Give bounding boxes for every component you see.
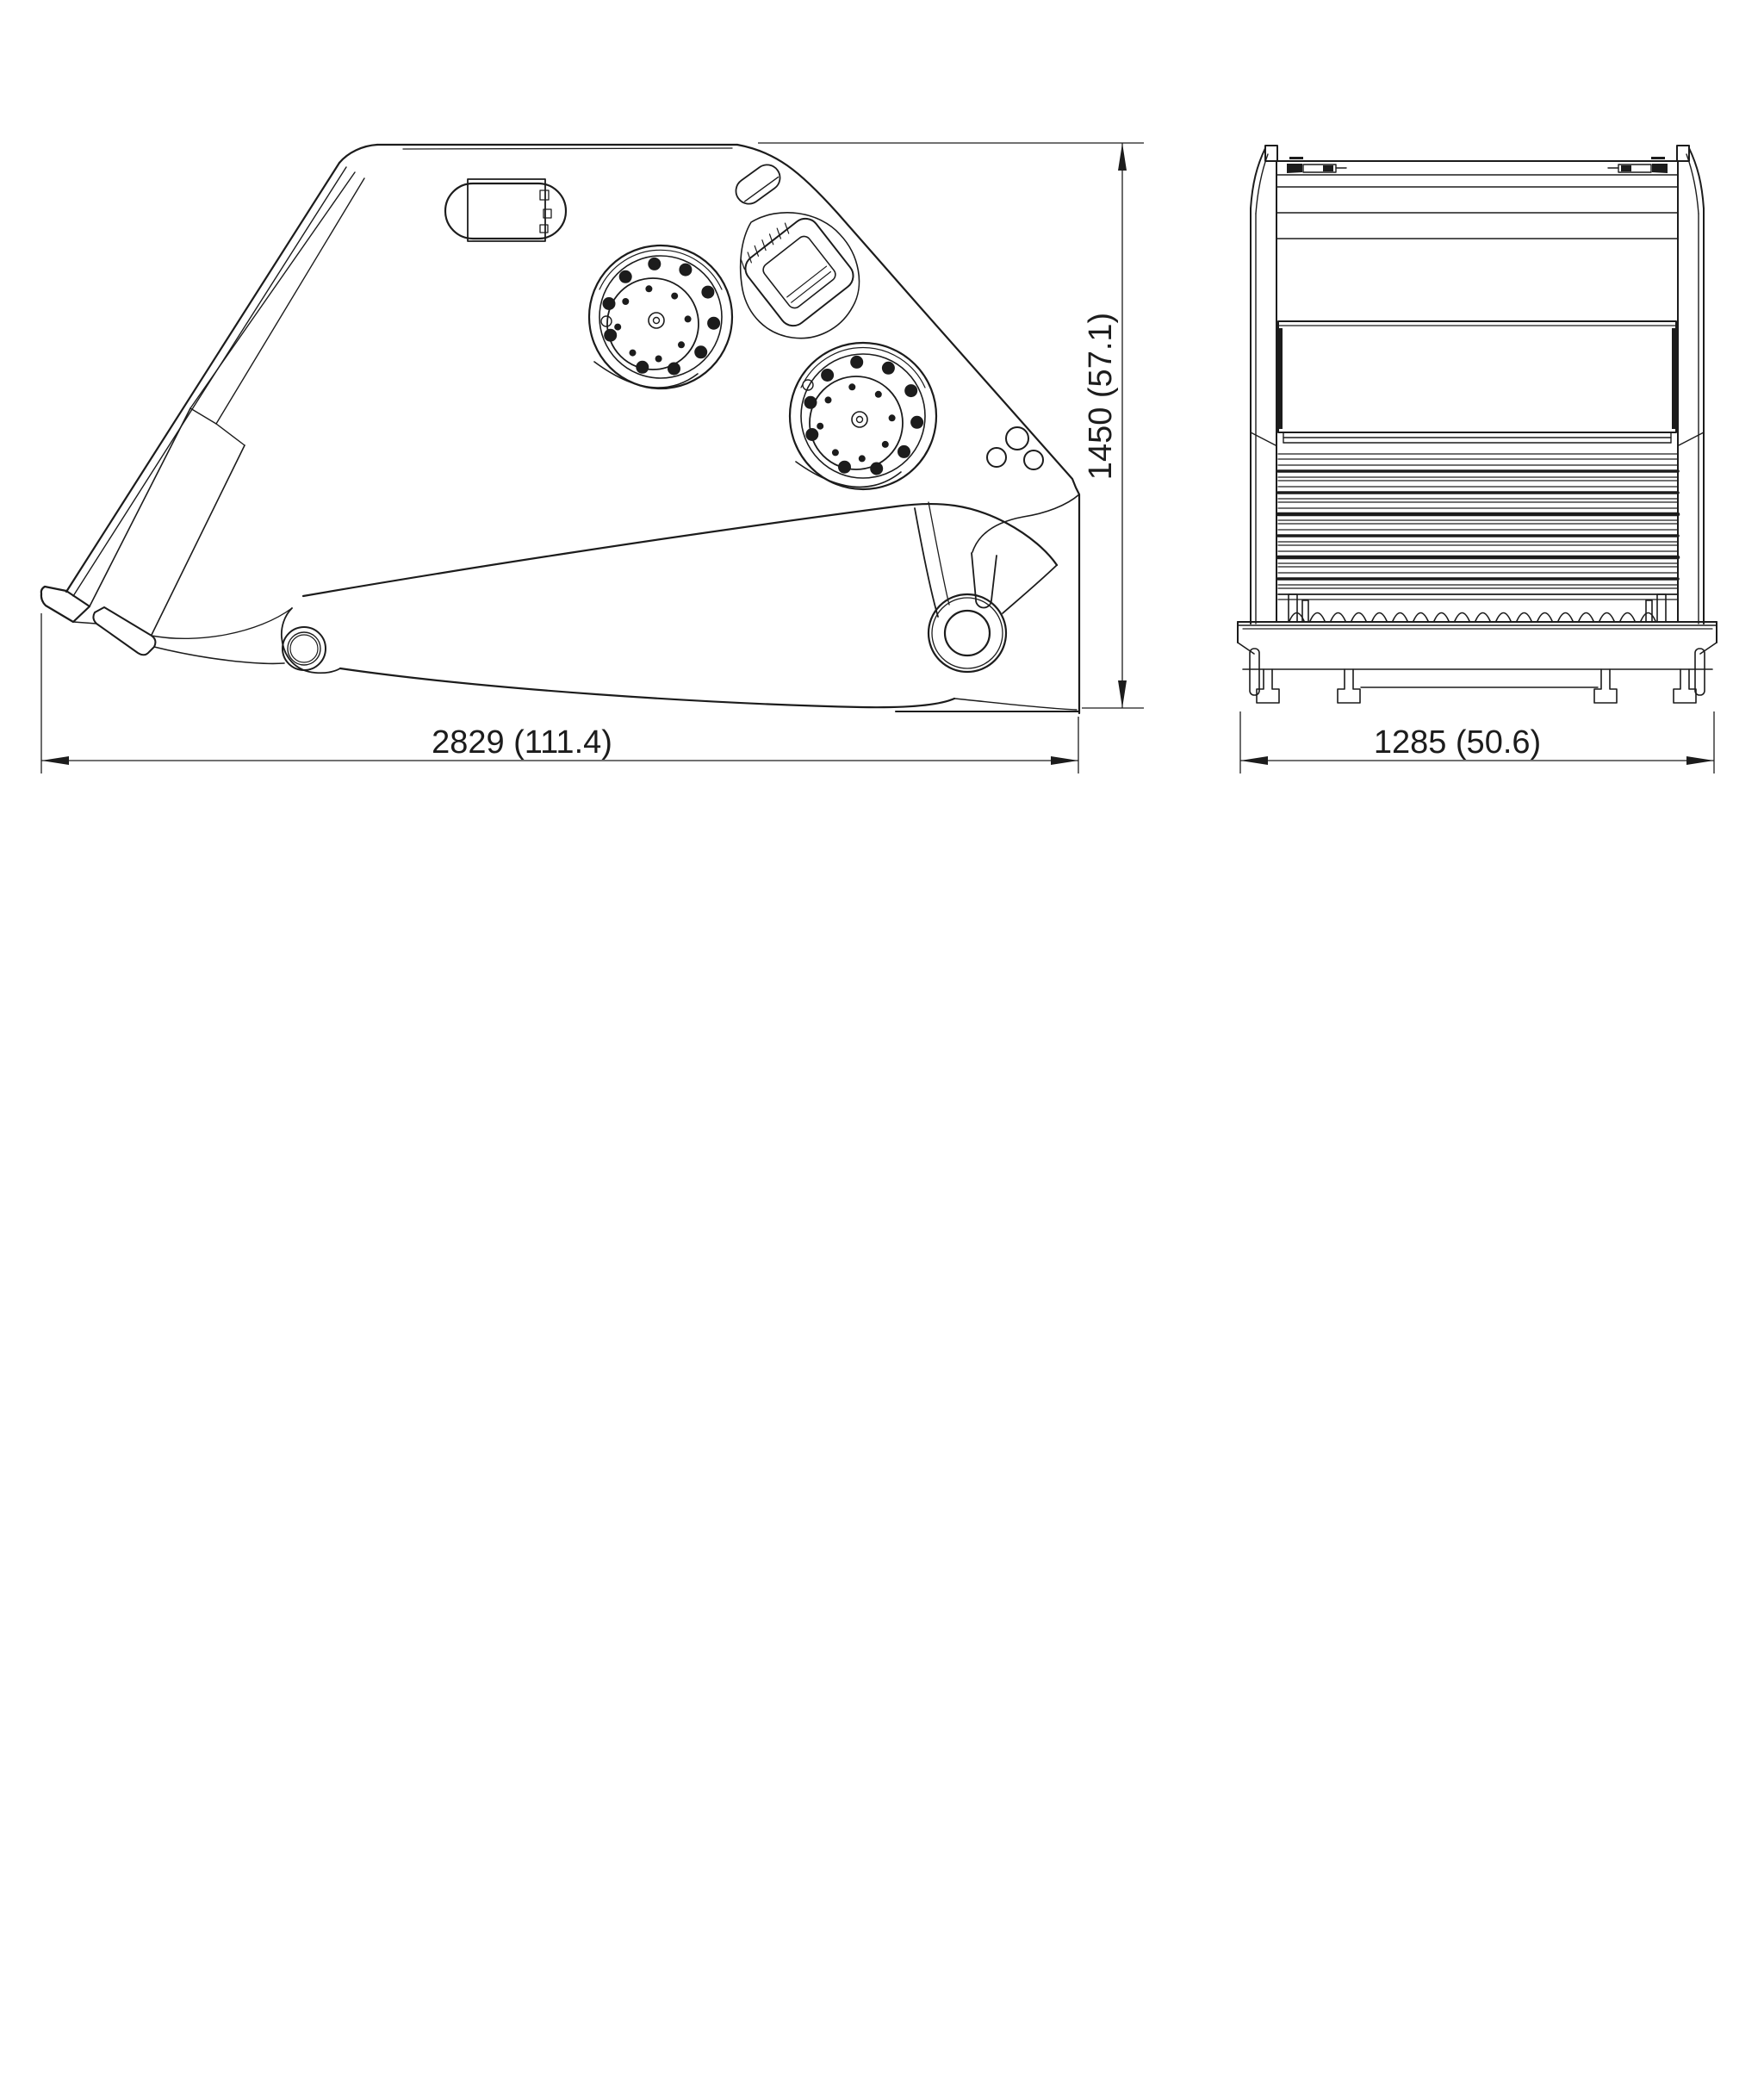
bolt-hole	[685, 315, 692, 322]
arrow-left	[41, 756, 69, 765]
bolt-hole	[817, 423, 823, 430]
bolt-hole	[648, 258, 661, 270]
screen-slats	[1278, 454, 1678, 600]
tooth	[1351, 613, 1366, 622]
bolt-hole	[619, 270, 632, 283]
bolt-hole	[904, 384, 917, 397]
bolt-hole	[671, 293, 678, 300]
tooth	[1372, 613, 1387, 622]
dim-side-height: 1450 (57.1)	[758, 143, 1144, 708]
arrow-right	[1051, 756, 1078, 765]
flange-inner-bolts	[614, 285, 691, 362]
arrow-right	[1686, 756, 1714, 765]
bolt-hole	[889, 414, 896, 421]
plate-foot	[1257, 669, 1279, 703]
plate-foot	[1594, 669, 1617, 703]
side-frame-right	[1678, 148, 1704, 624]
bolt-hole	[882, 362, 895, 375]
back-panel	[1278, 321, 1676, 443]
tooth	[1599, 613, 1614, 622]
bolt-hole	[636, 361, 649, 374]
tooth	[1496, 613, 1511, 622]
bolt-hole	[870, 463, 883, 475]
dim-front-width: 1285 (50.6)	[1240, 711, 1714, 773]
bolt-hole	[603, 297, 616, 310]
bolt-hole	[910, 416, 923, 429]
corner-holes	[987, 427, 1043, 469]
tooth	[1641, 613, 1655, 622]
bolt-hole	[694, 345, 707, 358]
bolt-hole	[707, 317, 720, 330]
bolt-hole	[875, 391, 882, 398]
flange-inner-bolts	[817, 383, 895, 462]
cutting-edge-strip	[90, 172, 364, 655]
hinge-left	[1287, 157, 1346, 173]
arrow-up	[1118, 143, 1127, 171]
teeth-row	[1289, 613, 1655, 622]
tooth	[1455, 613, 1469, 622]
bolt-hole	[821, 369, 834, 382]
top-tab-left	[1265, 146, 1277, 161]
bolt-hole	[655, 356, 662, 363]
dim-label-side-width: 2829 (111.4)	[432, 724, 612, 761]
bracket-hatching	[737, 222, 792, 269]
tooth	[1393, 613, 1407, 622]
bucket-lip	[41, 587, 96, 624]
bolt-hole	[804, 396, 817, 409]
arrow-down	[1118, 680, 1127, 708]
link-arm	[915, 502, 1057, 672]
bolt-hole	[859, 455, 866, 462]
bolt-hole	[805, 428, 818, 441]
bottom-plate	[1238, 622, 1717, 703]
top-tab-right	[1677, 146, 1689, 161]
pivot-boss	[283, 627, 326, 670]
tooth	[1537, 613, 1552, 622]
tooth	[1310, 613, 1325, 622]
dim-label-front-width: 1285 (50.6)	[1374, 724, 1541, 761]
bolt-hole	[645, 285, 652, 292]
bolt-hole	[848, 383, 855, 390]
tooth	[1434, 613, 1449, 622]
tooth	[1331, 613, 1345, 622]
bolt-hole	[679, 264, 692, 276]
bottom-arm	[152, 494, 1079, 710]
hinge-right	[1608, 157, 1668, 173]
motor-cutout	[445, 179, 566, 241]
bolt-hole	[668, 363, 680, 376]
lifting-slot	[731, 159, 786, 208]
tooth	[1413, 613, 1428, 622]
bolt-hole	[882, 441, 889, 448]
tooth	[1475, 613, 1490, 622]
bolt-hole	[622, 298, 629, 305]
plate-foot	[1674, 669, 1696, 703]
bolt-hole	[701, 286, 714, 299]
tooth	[1579, 613, 1593, 622]
plate-feet	[1257, 669, 1696, 703]
bolt-hole	[898, 445, 910, 458]
top-bar	[1265, 146, 1689, 239]
arrow-left	[1240, 756, 1268, 765]
bolt-hole	[678, 341, 685, 348]
shackle-bracket	[736, 208, 859, 339]
bolt-hole	[825, 396, 832, 403]
drive-flange-2	[790, 343, 936, 489]
bolt-hole	[604, 329, 617, 342]
dim-label-side-height: 1450 (57.1)	[1083, 313, 1119, 480]
tooth	[1517, 613, 1531, 622]
front-view	[1238, 146, 1717, 703]
plate-foot	[1338, 669, 1360, 703]
drive-flange-1	[589, 245, 732, 388]
side-plate-outline	[66, 145, 1079, 713]
side-view	[41, 145, 1079, 713]
tooth	[1620, 613, 1635, 622]
dim-side-width: 2829 (111.4)	[41, 613, 1078, 773]
bolt-hole	[850, 356, 863, 369]
bolt-hole	[614, 324, 621, 331]
bolt-hole	[832, 449, 839, 456]
tooth	[1558, 613, 1573, 622]
side-frame-left	[1251, 148, 1276, 624]
bolt-hole	[630, 350, 637, 357]
drawing-page: 2829 (111.4) 1450 (57.1) 1285 (50.6)	[0, 0, 1764, 2075]
bolt-hole	[838, 461, 851, 474]
